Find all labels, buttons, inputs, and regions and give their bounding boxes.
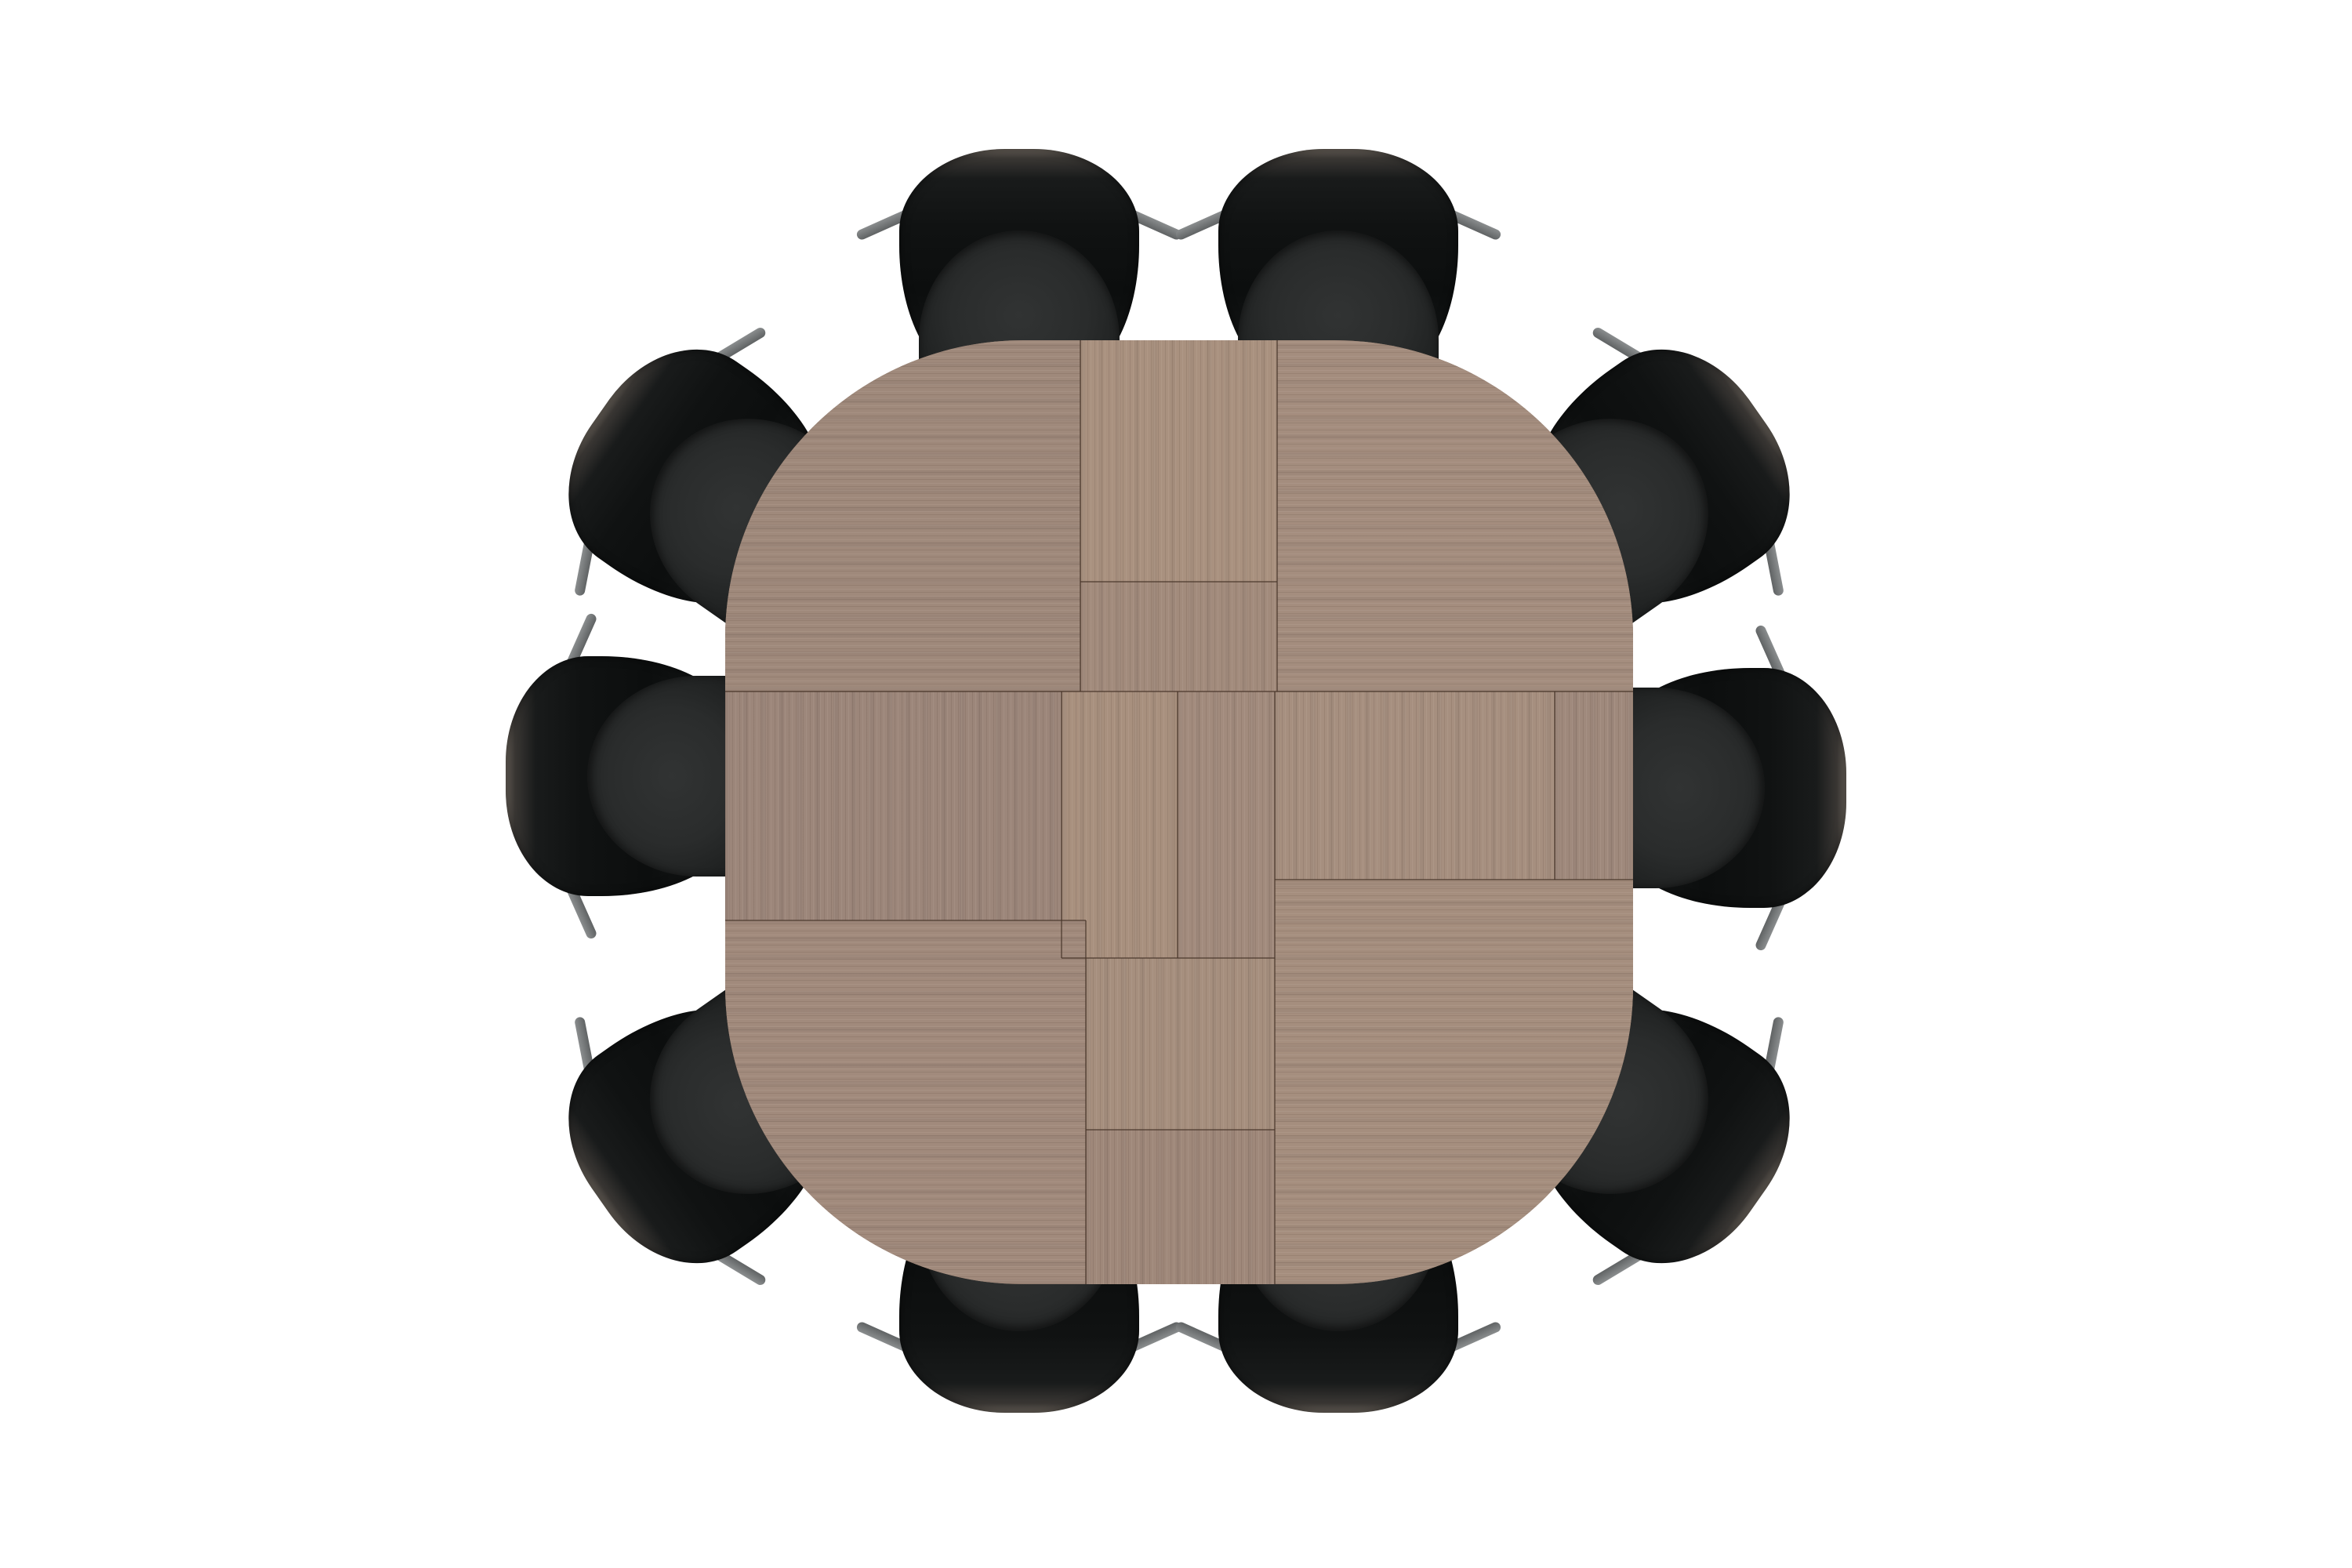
tabletop-panel-top-band-upper bbox=[1080, 340, 1277, 582]
tabletop-panel-mid-right-a bbox=[1275, 691, 1555, 880]
tabletop-seam-h-main-upper bbox=[725, 691, 1633, 692]
scene bbox=[0, 0, 2352, 1568]
tabletop-panel-top-band-lower bbox=[1080, 582, 1277, 691]
tabletop-panel-bottom-left bbox=[725, 920, 1086, 1284]
tabletop-panel-mid-right-b bbox=[1555, 691, 1633, 880]
tabletop-panel-mid-center-a bbox=[1062, 691, 1178, 958]
tabletop-seam-v-mid-a bbox=[1061, 691, 1062, 958]
tabletop-seam-v-center-long bbox=[1274, 691, 1276, 1284]
tabletop-panel-mid-center-b bbox=[1178, 691, 1275, 958]
tabletop-seam-v-mid-right bbox=[1554, 691, 1555, 880]
tabletop-panel-top-left bbox=[725, 340, 1080, 691]
tabletop-panel-bottom-right bbox=[1275, 880, 1633, 1284]
tabletop-seam-h-lower-center bbox=[1062, 957, 1275, 959]
tabletop-seam-h-lower-left bbox=[725, 920, 1086, 921]
tabletop-seam-h-bottom-band bbox=[1086, 1129, 1275, 1131]
tabletop-panel-mid-left bbox=[725, 691, 1062, 920]
tabletop-seam-v-mid-b bbox=[1177, 691, 1178, 958]
tabletop-seam-v-top-band-left bbox=[1080, 340, 1081, 691]
tabletop-panel-bottom-band-up bbox=[1086, 958, 1275, 1130]
tabletop-seam-v-top-band-right bbox=[1276, 340, 1278, 691]
tabletop-seam-h-top-band-split bbox=[1080, 581, 1277, 583]
tabletop-seam-v-bottom-band bbox=[1085, 920, 1087, 1284]
dining-table bbox=[725, 340, 1633, 1284]
tabletop-panel-bottom-band-low bbox=[1086, 1130, 1275, 1284]
tabletop-panel-top-right bbox=[1277, 340, 1633, 691]
tabletop-seam-h-lower-right bbox=[1275, 879, 1633, 880]
